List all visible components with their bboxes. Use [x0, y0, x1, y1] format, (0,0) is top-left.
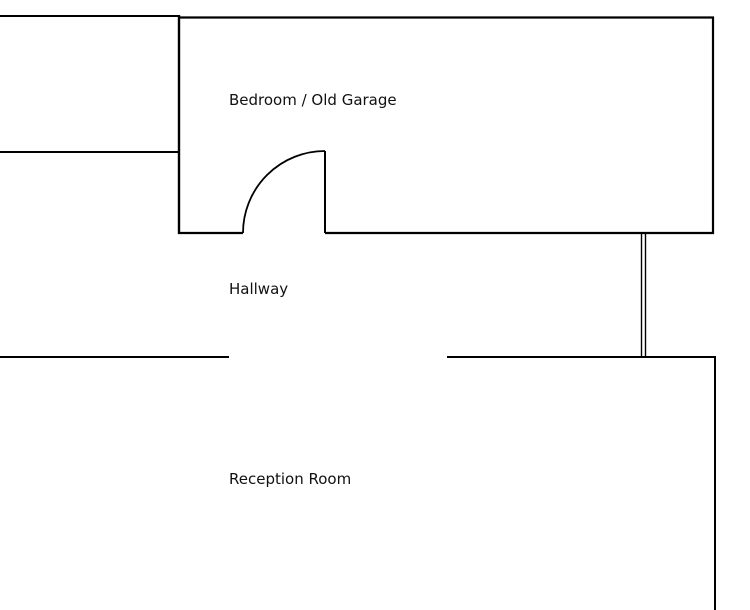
room-label-reception-room: Reception Room — [229, 470, 351, 488]
bedroom-door-swing-arc — [243, 151, 325, 233]
floor-plan: Bedroom / Old Garage Hallway Reception R… — [0, 0, 750, 610]
room-label-hallway: Hallway — [229, 280, 288, 298]
room-label-bedroom-old-garage: Bedroom / Old Garage — [229, 91, 397, 109]
